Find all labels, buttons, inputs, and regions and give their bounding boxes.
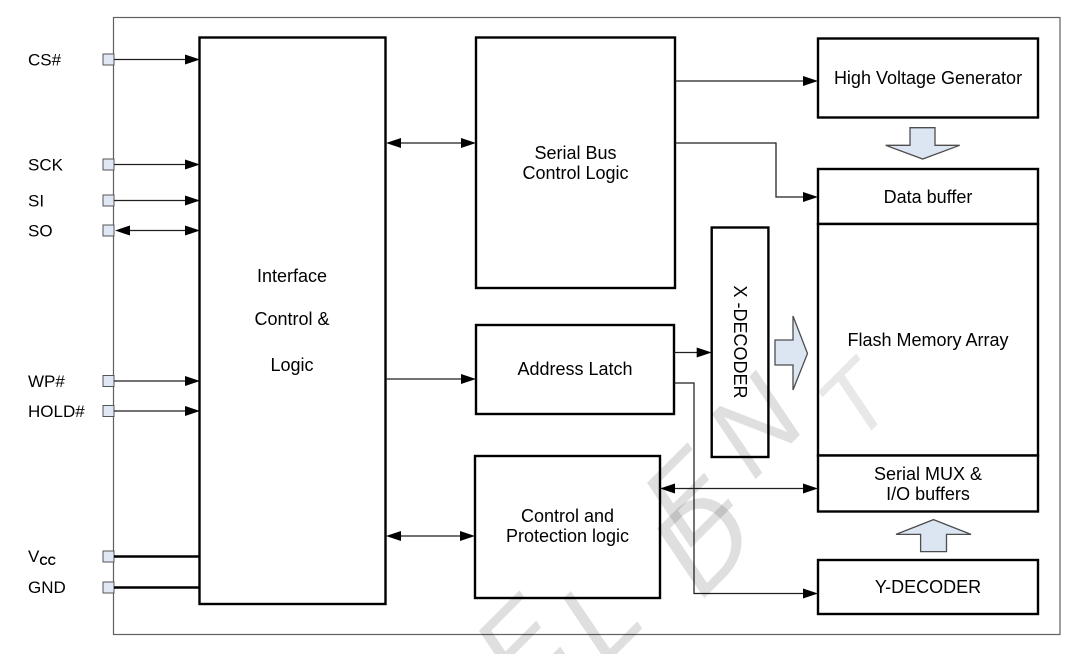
svg-text:Logic: Logic [270, 355, 313, 375]
svg-text:SO: SO [28, 222, 53, 241]
svg-text:Serial MUX &: Serial MUX & [874, 464, 982, 484]
svg-text:Flash Memory Array: Flash Memory Array [847, 330, 1008, 350]
svg-text:Interface: Interface [257, 266, 327, 286]
svg-text:SCK: SCK [28, 156, 64, 175]
svg-text:I/O buffers: I/O buffers [886, 484, 970, 504]
svg-text:WP#: WP# [28, 372, 65, 391]
svg-text:Control and: Control and [521, 506, 614, 526]
svg-text:Serial Bus: Serial Bus [534, 143, 616, 163]
svg-text:GND: GND [28, 578, 66, 597]
svg-text:Y-DECODER: Y-DECODER [875, 577, 981, 597]
svg-text:Control &: Control & [254, 309, 329, 329]
svg-text:Data buffer: Data buffer [884, 187, 973, 207]
svg-text:HOLD#: HOLD# [28, 402, 85, 421]
svg-text:Protection logic: Protection logic [506, 526, 629, 546]
svg-text:Control Logic: Control Logic [522, 163, 628, 183]
svg-text:High Voltage Generator: High Voltage Generator [834, 68, 1022, 88]
svg-text:CS#: CS# [28, 51, 62, 70]
svg-text:Address Latch: Address Latch [517, 359, 632, 379]
svg-text:SI: SI [28, 192, 44, 211]
